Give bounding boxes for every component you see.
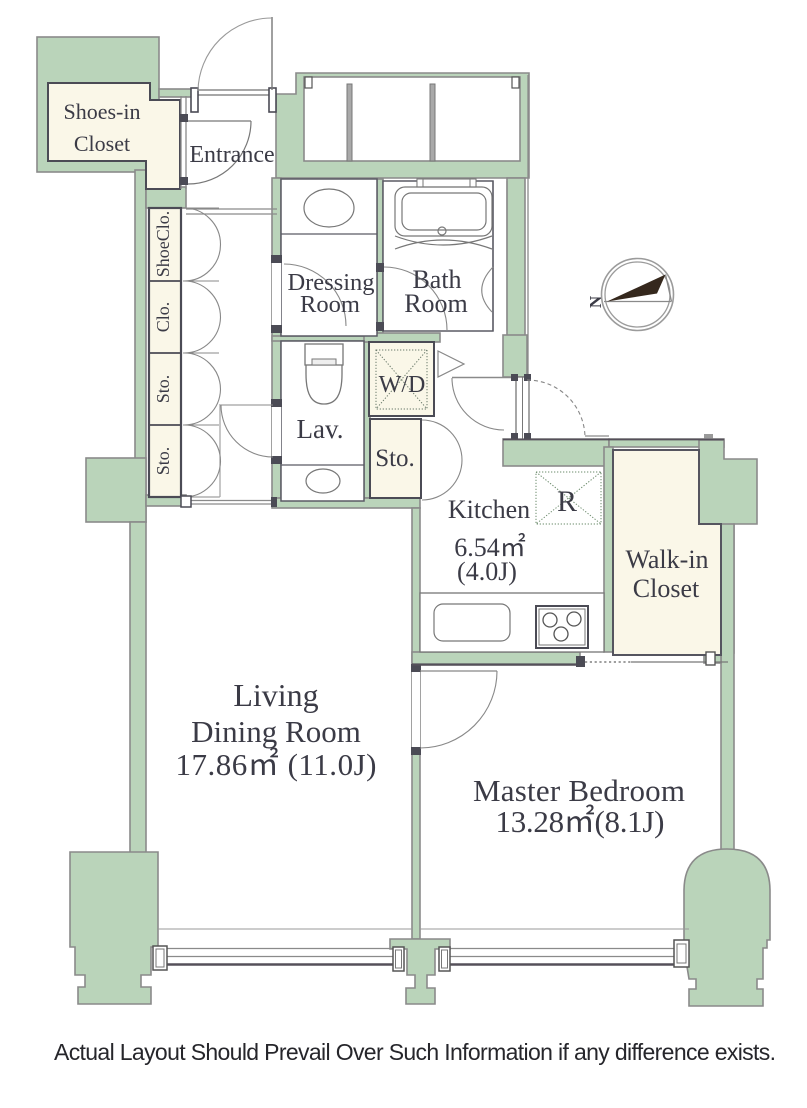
svg-text:R: R: [557, 485, 577, 518]
svg-text:Closet: Closet: [74, 131, 130, 156]
svg-text:Kitchen: Kitchen: [448, 495, 530, 524]
svg-text:Sto.: Sto.: [375, 445, 415, 472]
svg-text:Closet: Closet: [633, 574, 700, 603]
svg-text:N: N: [586, 295, 605, 308]
svg-text:Living: Living: [233, 677, 318, 713]
svg-text:Entrance: Entrance: [189, 142, 274, 168]
svg-text:W/D: W/D: [379, 372, 426, 398]
svg-text:Actual Layout Should Prevail O: Actual Layout Should Prevail Over Such I…: [54, 1039, 776, 1065]
svg-text:13.28㎡(8.1J): 13.28㎡(8.1J): [496, 804, 665, 839]
svg-text:17.86㎡ (11.0J): 17.86㎡ (11.0J): [176, 747, 377, 782]
svg-text:Sto.: Sto.: [153, 375, 173, 404]
svg-text:ShoeClo.: ShoeClo.: [153, 211, 173, 278]
svg-text:Lav.: Lav.: [297, 414, 344, 444]
svg-text:Sto.: Sto.: [153, 447, 173, 476]
svg-text:(4.0J): (4.0J): [457, 557, 517, 586]
svg-text:Clo.: Clo.: [153, 302, 173, 333]
svg-text:Room: Room: [404, 289, 468, 318]
svg-text:Shoes-in: Shoes-in: [64, 99, 141, 124]
svg-text:Room: Room: [300, 291, 360, 318]
svg-text:Walk-in: Walk-in: [625, 545, 708, 574]
svg-text:Dining Room: Dining Room: [191, 714, 361, 749]
svg-text:Master Bedroom: Master Bedroom: [473, 773, 685, 808]
